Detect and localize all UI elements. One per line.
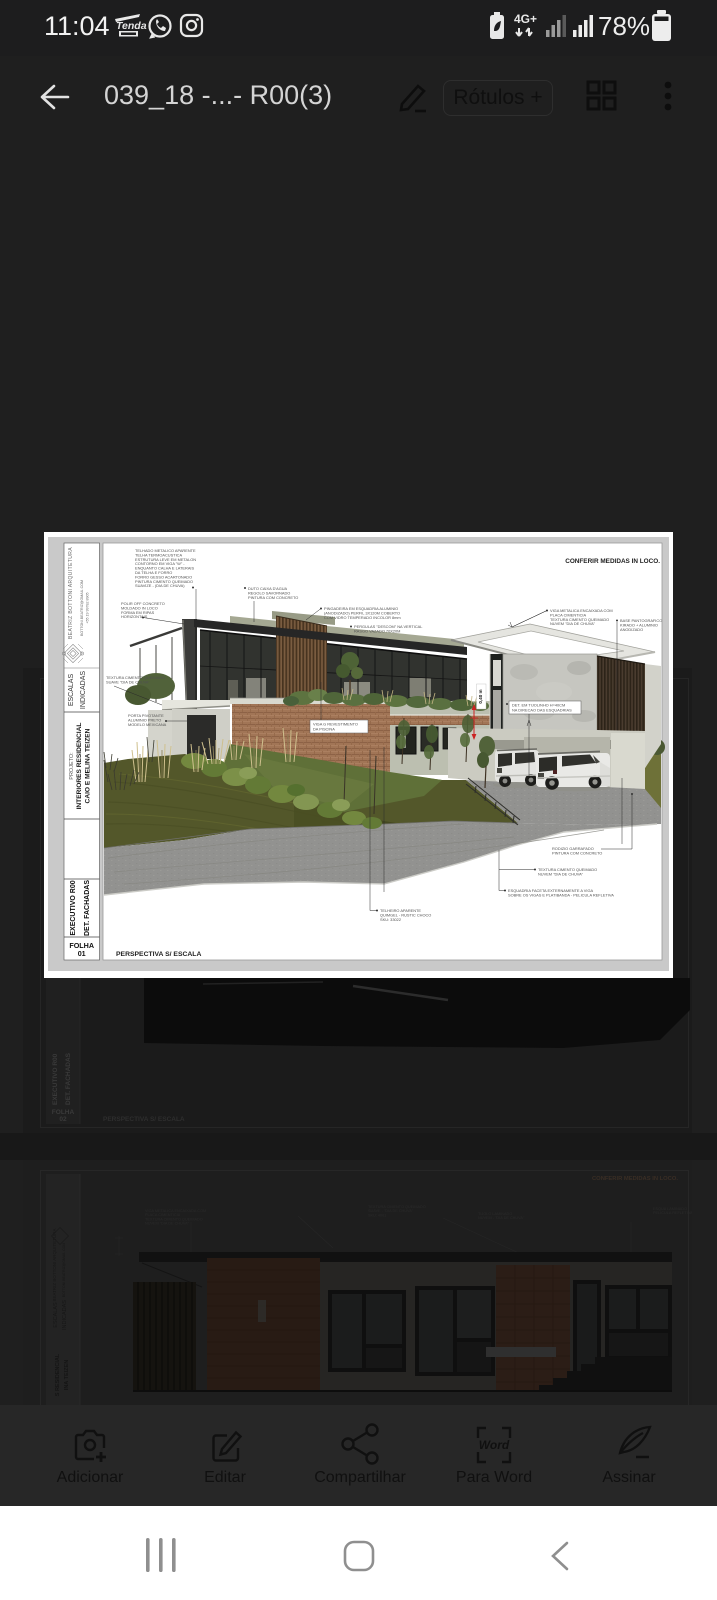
svg-text:PORTA PIVOTANTE ALUMINIO P: PORTA PIVOTANTE ALUMINIO PRETO MODELO ME…	[128, 713, 167, 727]
svg-text:4G+: 4G+	[514, 12, 537, 26]
svg-text:RODIZIO GARRAFADO PINTURA: RODIZIO GARRAFADO PINTURA COM CONCRETO	[552, 846, 602, 855]
svg-text:01: 01	[78, 949, 86, 958]
svg-text:ESCALAS: ESCALAS	[68, 674, 75, 707]
svg-text:PERSPECTIVA S/ ESCALA: PERSPECTIVA S/ ESCALA	[116, 951, 201, 958]
svg-text:INA TEIZEN: INA TEIZEN	[64, 1360, 70, 1390]
svg-text:0,40 m: 0,40 m	[478, 689, 483, 703]
svg-text:CONFERIR MEDIDAS IN LOCO.: CONFERIR MEDIDAS IN LOCO.	[565, 558, 660, 565]
svg-text:INDICADAS: INDICADAS	[80, 671, 87, 709]
svg-text:CONFERIR MEDIDAS IN LOCO.: CONFERIR MEDIDAS IN LOCO.	[592, 1176, 678, 1182]
svg-text:BEATRIZ BOTTONI ARQUITETURA: BEATRIZ BOTTONI ARQUITETURA	[68, 547, 74, 639]
svg-text:CAIO E MELINA TEIZEN: CAIO E MELINA TEIZEN	[85, 728, 92, 803]
svg-text:BOTTONI.BEATRIZ@GMAIL.COM: BOTTONI.BEATRIZ@GMAIL.COM	[62, 1243, 66, 1298]
svg-text:INTERIORES RESIDENCIAL: INTERIORES RESIDENCIAL	[76, 723, 83, 810]
svg-text:ESCALAS: ESCALAS	[53, 1302, 59, 1328]
svg-text:78%: 78%	[598, 11, 650, 41]
svg-text:DET. FACHADAS: DET. FACHADAS	[84, 880, 91, 936]
svg-text:PERSPECTIVA S/ ESCALA: PERSPECTIVA S/ ESCALA	[103, 1116, 185, 1123]
svg-text:02: 02	[59, 1116, 67, 1123]
svg-text:DET. FACHADAS: DET. FACHADAS	[65, 1052, 72, 1105]
svg-text:DET. EM TIJOLINHO H=40CM N: DET. EM TIJOLINHO H=40CM NA DIRECAO DAS …	[512, 703, 572, 713]
svg-text:BOTTONI.BEATRIZ@GMAIL.COM: BOTTONI.BEATRIZ@GMAIL.COM	[80, 580, 84, 636]
svg-text:EXECUTIVO R00: EXECUTIVO R00	[70, 880, 77, 935]
svg-text:INDICADAS: INDICADAS	[62, 1300, 68, 1330]
svg-text:S RESIDENCIAL: S RESIDENCIAL	[55, 1353, 61, 1396]
svg-text:+55 19 99782 8905: +55 19 99782 8905	[86, 592, 90, 623]
svg-text:FOLHA: FOLHA	[52, 1109, 75, 1116]
svg-text:ESQUA LAMINADOPELICULA REFLETI: ESQUA LAMINADOPELICULA REFLETIVA	[653, 1207, 692, 1215]
svg-text:EXECUTIVO R00: EXECUTIVO R00	[52, 1053, 59, 1105]
svg-text:PINGADEIRA EM ESQUADRIA ALUMIN: PINGADEIRA EM ESQUADRIA ALUMINIO (ANODIZ…	[324, 606, 401, 620]
svg-text:Tenda: Tenda	[116, 20, 147, 32]
svg-text:PROJETO:: PROJETO:	[69, 752, 75, 780]
svg-text:Word: Word	[479, 1438, 510, 1452]
